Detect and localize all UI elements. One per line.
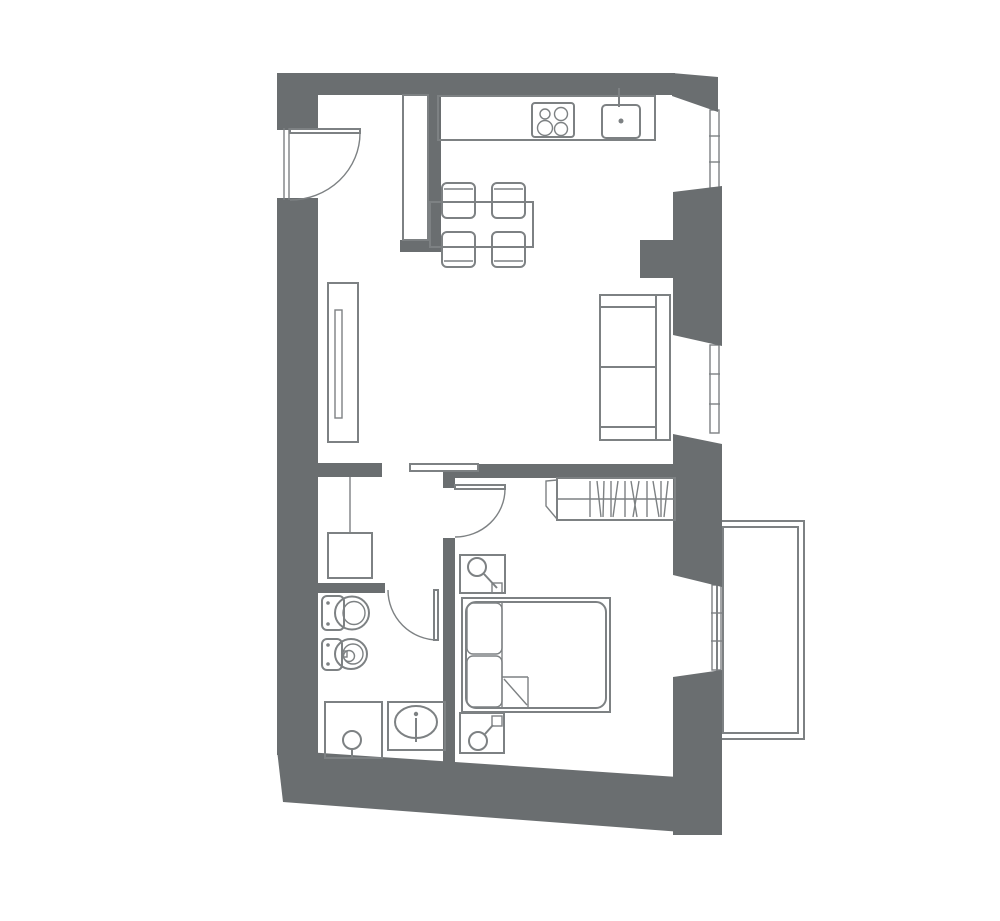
furniture-layer [0,0,1000,921]
dining-chair [442,232,475,267]
entry-door [284,128,360,200]
stove-icon [532,103,574,137]
sofa [600,295,670,440]
dining-chair [492,232,525,267]
double-bed [462,598,610,712]
shower-icon [325,702,382,758]
nightstand-lamp-top [460,555,505,593]
wall-cabinet-left [328,283,358,442]
washing-machine [328,533,372,578]
tall-kitchen-cabinet [403,95,428,240]
wardrobe-with-hangers [546,478,675,520]
nightstand-lamp-bottom [460,713,504,753]
dining-table [430,202,533,247]
bidet-icon [322,639,367,670]
bathroom-door [388,590,438,640]
dining-chair [442,183,475,218]
floor-plan [0,0,1000,921]
sliding-door [410,464,478,471]
toilet-icon [322,596,369,630]
bedroom-door [455,485,505,537]
bathroom-sink-icon [388,702,445,750]
dining-chair [492,183,525,218]
